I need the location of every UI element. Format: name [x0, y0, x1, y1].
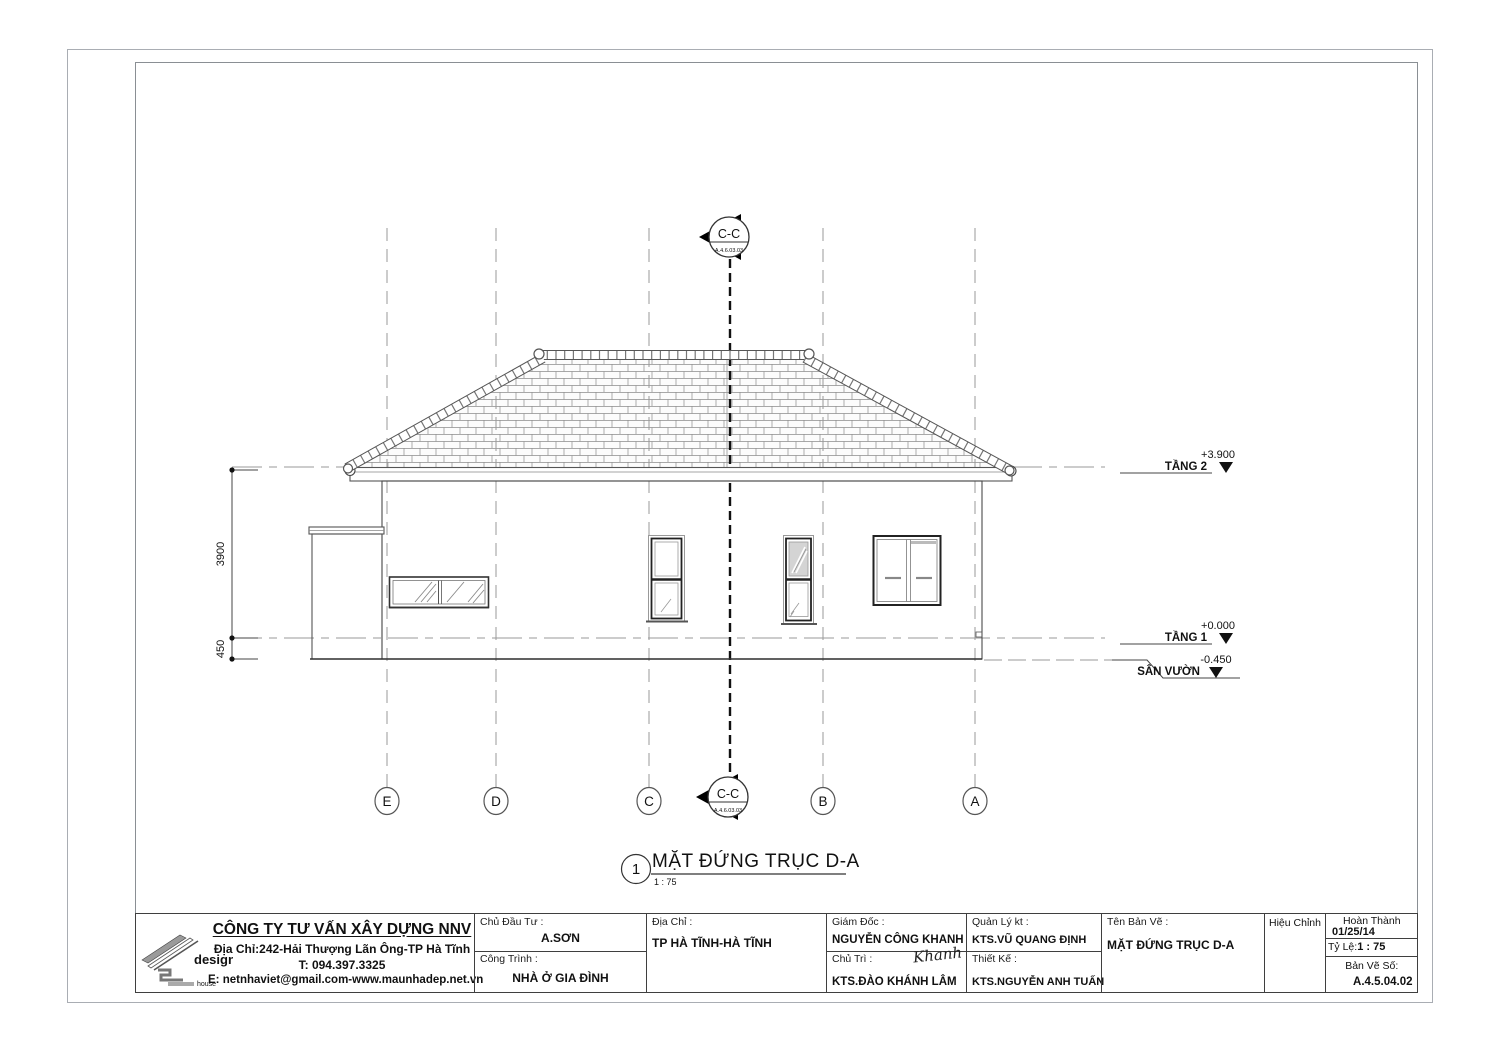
dimension-450: 450 [215, 640, 227, 658]
company-phone: T: 094.397.3325 [208, 957, 476, 973]
sheet-no-value: A.4.5.04.02 [1326, 976, 1418, 988]
level-label: TẦNG 1 [1165, 631, 1208, 644]
scale-label: Tỷ Lệ: [1328, 941, 1357, 953]
level-tang1: TẦNG 1 +0.000 [1120, 620, 1235, 644]
investor-project-cell: Chủ Đầu Tư : A.SƠN Công Trình : NHÀ Ở GI… [474, 914, 646, 992]
company-name: CÔNG TY TƯ VẤN XÂY DỰNG NNV [208, 920, 476, 941]
revision-cell: Hiệu Chỉnh [1264, 914, 1325, 992]
project-label: Công Trình : [480, 953, 538, 965]
level-value: +3.900 [1201, 449, 1235, 461]
view-scale: 1 : 75 [654, 877, 677, 887]
company-address: Địa Chỉ:242-Hải Thượng Lãn Ông-TP Hà Tĩn… [208, 941, 476, 957]
director-label: Giám Đốc : [832, 916, 885, 928]
section-label: C-C [718, 227, 740, 241]
window-grid-c [646, 536, 688, 622]
section-marker-bottom: C-C A.4.6.03.03 [696, 774, 748, 820]
elevation-drawing: TẦNG 2 +3.900 TẦNG 1 +0.000 SÂN VƯỜN -0.… [0, 0, 1500, 1061]
dimension-chain: 3900 450 [215, 467, 258, 661]
director-lead-cell: Giám Đốc : NGUYỄN CÔNG KHANH Chủ Trì : K… [826, 914, 966, 992]
grid-lines [387, 228, 975, 788]
drawing-name-value: MẶT ĐỨNG TRỤC D-A [1107, 938, 1234, 952]
dimension-3900: 3900 [215, 542, 227, 566]
section-ref: A.4.6.03.03 [715, 248, 743, 254]
lead-label: Chủ Trì : [832, 953, 872, 965]
title-block: design house CÔNG TY TƯ VẤN XÂY DỰNG NNV… [135, 913, 1418, 993]
level-label: TẦNG 2 [1165, 460, 1207, 473]
lead-value: KTS.ĐÀO KHÁNH LÂM [832, 976, 957, 988]
manager-value: KTS.VŨ QUANG ĐỊNH [972, 934, 1086, 946]
grid-bubble-label: B [818, 794, 827, 809]
designer-label: Thiết Kế : [972, 953, 1017, 965]
drawing-name-cell: Tên Bản Vẽ : MẶT ĐỨNG TRỤC D-A [1101, 914, 1264, 992]
level-tang2: TẦNG 2 +3.900 [1120, 449, 1235, 473]
investor-value: A.SƠN [475, 931, 646, 945]
grid-bubble-label: E [382, 794, 391, 809]
level-value: -0.450 [1200, 654, 1231, 666]
level-san-vuon: SÂN VƯỜN -0.450 [1112, 654, 1240, 678]
company-email: E: netnhaviet@gmail.com-www.maunhadep.ne… [208, 973, 476, 989]
drawing-name-label: Tên Bản Vẽ : [1107, 916, 1168, 928]
grid-bubble-label: D [491, 794, 501, 809]
section-marker-top: C-C A.4.6.03.03 [699, 214, 749, 260]
issue-cell: Hoàn Thành 01/25/14 Tỷ Lệ: 1 : 75 Bản Vẽ… [1325, 914, 1418, 992]
address-value: TP HÀ TĨNH-HÀ TĨNH [652, 936, 772, 950]
section-ref: A.4.6.03.03 [714, 808, 742, 814]
designer-value: KTS.NGUYỄN ANH TUẤN [972, 976, 1104, 988]
view-title-text: MẶT ĐỨNG TRỤC D-A [652, 850, 860, 872]
section-label: C-C [717, 787, 739, 801]
window-double-casement [874, 536, 941, 605]
investor-label: Chủ Đầu Tư : [480, 916, 543, 928]
scale-value: 1 : 75 [1357, 941, 1385, 953]
address-cell: Địa Chỉ : TP HÀ TĨNH-HÀ TĨNH [646, 914, 826, 992]
address-label: Địa Chỉ : [652, 916, 692, 928]
revision-label: Hiệu Chỉnh [1265, 917, 1325, 929]
grid-bubble-label: C [644, 794, 654, 809]
level-value: +0.000 [1201, 620, 1235, 632]
level-label: SÂN VƯỜN [1137, 665, 1200, 678]
window-strip [389, 577, 489, 608]
company-cell: design house CÔNG TY TƯ VẤN XÂY DỰNG NNV… [136, 914, 474, 992]
grid-bubble-label: A [970, 794, 979, 809]
lead-signature: Khanh [912, 943, 963, 966]
manager-label: Quản Lý kt : [972, 916, 1029, 928]
project-value: NHÀ Ở GIA ĐÌNH [475, 971, 646, 985]
view-title: 1 MẶT ĐỨNG TRỤC D-A 1 : 75 [622, 850, 860, 887]
manager-designer-cell: Quản Lý kt : KTS.VŨ QUANG ĐỊNH Thiết Kế … [966, 914, 1101, 992]
view-number: 1 [632, 861, 640, 878]
completed-date: 01/25/14 [1332, 926, 1418, 938]
sheet-no-label: Bản Vẽ Số: [1326, 960, 1418, 972]
grid-bubbles: E D C B A [375, 788, 987, 815]
window-grid-b [781, 536, 817, 625]
